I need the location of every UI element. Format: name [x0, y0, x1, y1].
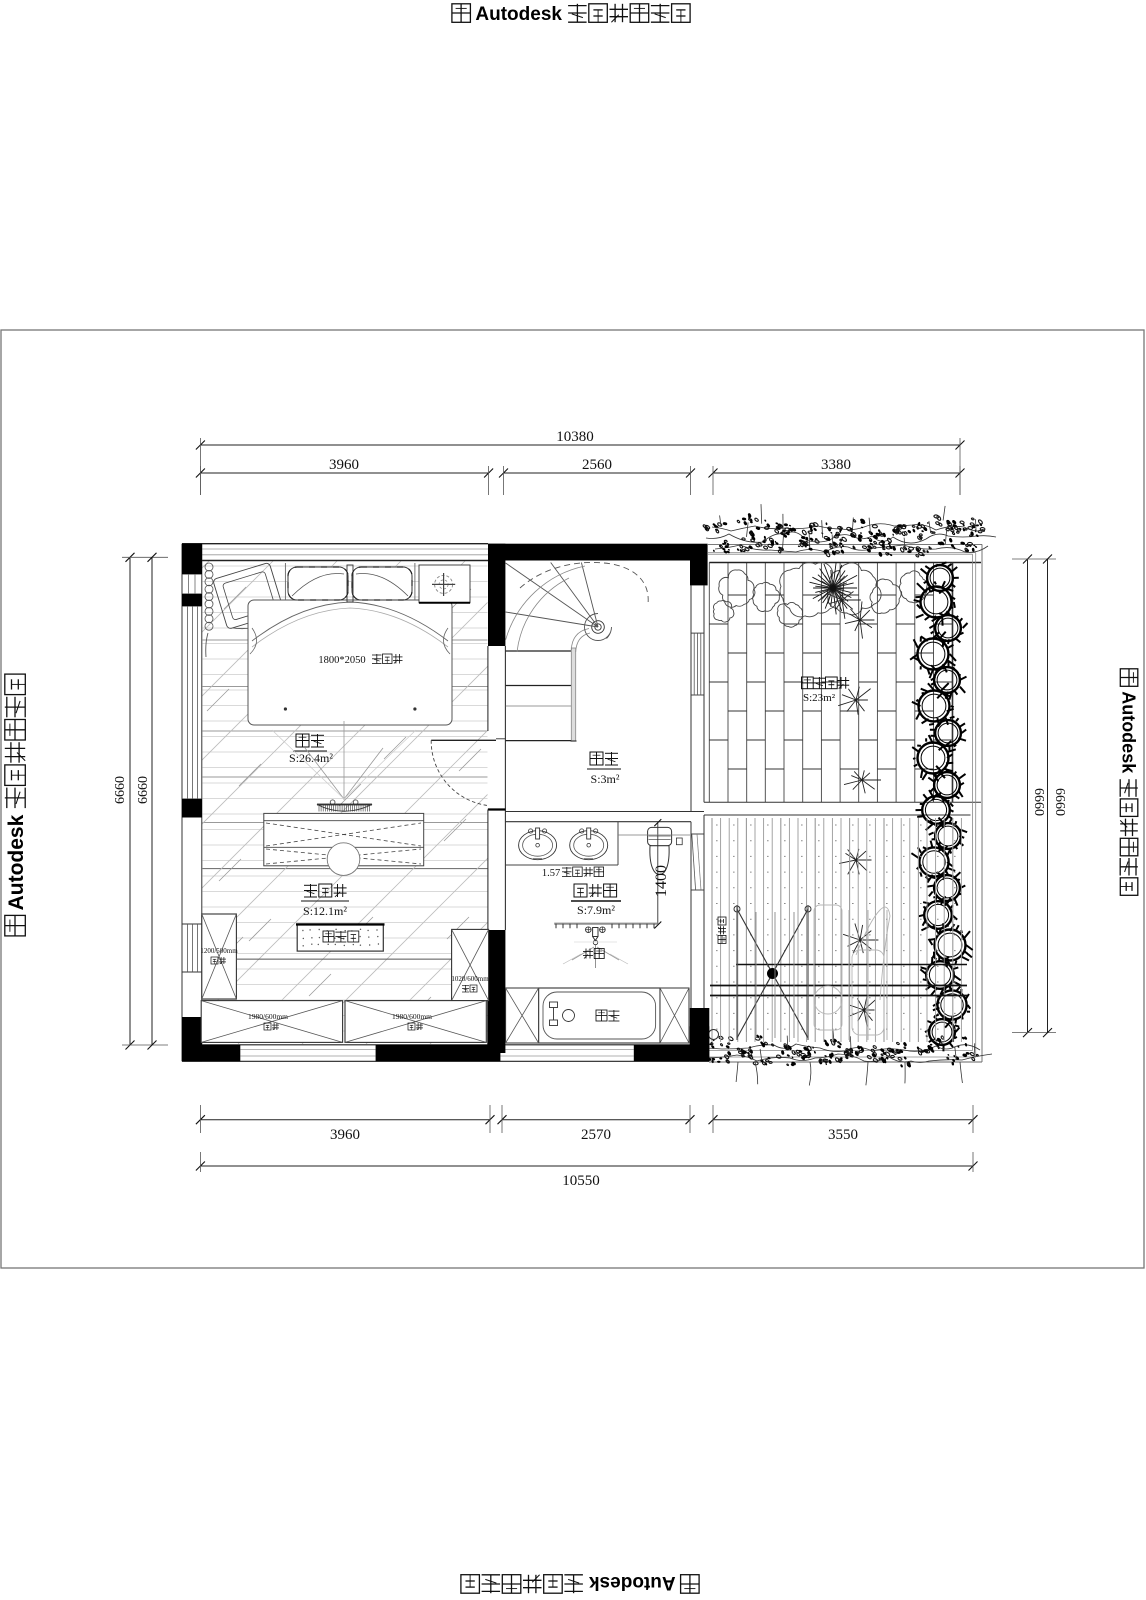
svg-text:Autodesk: Autodesk [475, 4, 562, 25]
svg-text:3960: 3960 [329, 457, 359, 473]
svg-text:3960: 3960 [330, 1127, 360, 1143]
svg-text:3380: 3380 [821, 457, 851, 473]
svg-text:6660: 6660 [1052, 788, 1067, 816]
svg-text:2560: 2560 [582, 457, 612, 473]
svg-text:S:3m²: S:3m² [591, 772, 620, 786]
svg-text:1200/500mm: 1200/500mm [200, 947, 238, 955]
svg-text:1020/600mm: 1020/600mm [451, 975, 489, 983]
svg-text:S:23m²: S:23m² [803, 692, 836, 704]
svg-text:Autodesk: Autodesk [589, 1572, 676, 1593]
svg-text:3550: 3550 [828, 1127, 858, 1143]
svg-text:1980/600mm: 1980/600mm [392, 1012, 432, 1021]
svg-text:1400: 1400 [653, 865, 670, 897]
svg-text:10550: 10550 [562, 1173, 600, 1189]
svg-text:Autodesk: Autodesk [5, 814, 28, 910]
svg-text:6660: 6660 [136, 776, 151, 804]
svg-text:1.57: 1.57 [542, 868, 560, 879]
svg-text:S:7.9m²: S:7.9m² [577, 903, 615, 917]
svg-text:10380: 10380 [556, 429, 594, 445]
svg-text:6660: 6660 [1031, 788, 1046, 816]
svg-text:2570: 2570 [581, 1127, 611, 1143]
svg-text:S:12.1m²: S:12.1m² [303, 904, 347, 918]
svg-text:6660: 6660 [113, 776, 128, 804]
svg-text:Autodesk: Autodesk [1118, 691, 1138, 774]
svg-text:1980/600mm: 1980/600mm [248, 1012, 288, 1021]
svg-text:1800*2050: 1800*2050 [318, 655, 365, 666]
